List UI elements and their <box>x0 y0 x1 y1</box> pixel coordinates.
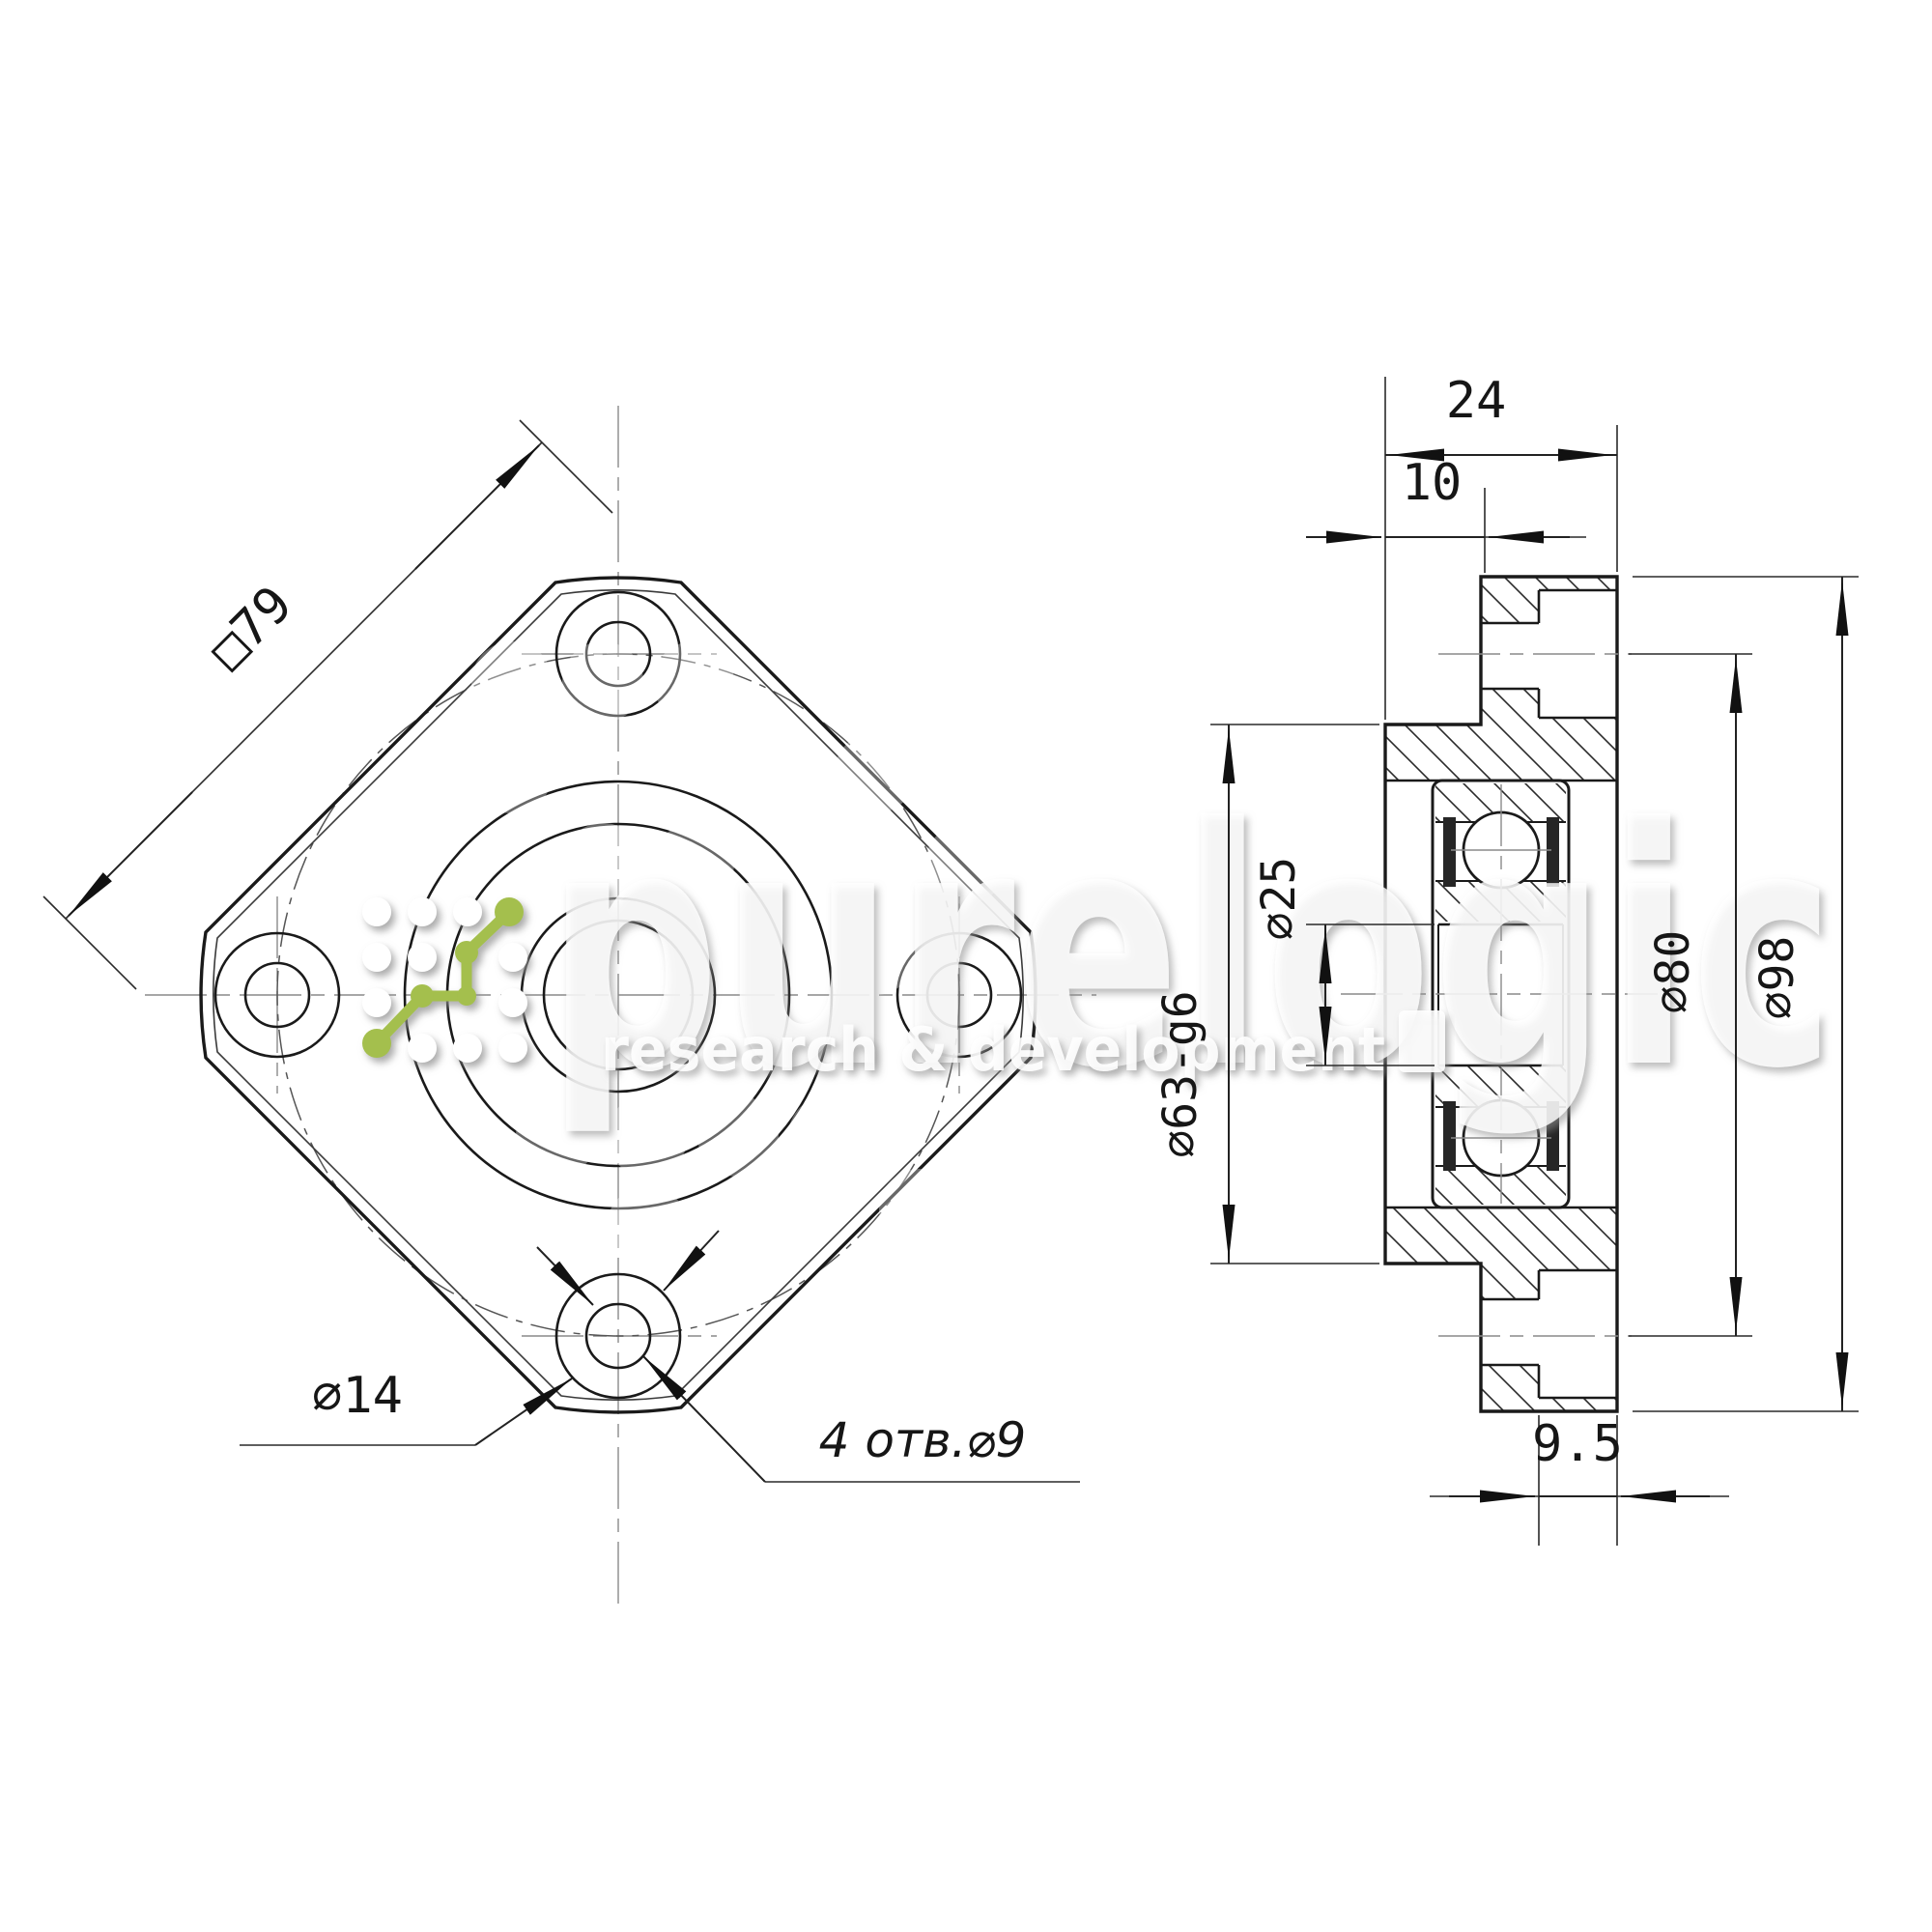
watermark-tagline-bar <box>1399 1010 1445 1072</box>
dim-depth-9-5: 9.5 <box>1430 1415 1729 1546</box>
dim-depth-9-5-label: 9.5 <box>1532 1415 1623 1473</box>
dim-flange-98-label: ⌀98 <box>1750 936 1804 1020</box>
dim-holes-count-label: 4 отв.⌀9 <box>819 1412 1027 1468</box>
drawing-canvas: purelogic research & development <box>0 0 1932 1932</box>
hatch-bottom-column <box>1481 1365 1617 1411</box>
dim-counterbore-label: ⌀14 <box>312 1367 403 1425</box>
dim-width-24: 24 <box>1385 372 1617 720</box>
hatch-bottom-band <box>1385 1207 1617 1299</box>
dim-pilot-63-label: ⌀63-g6 <box>1153 990 1207 1157</box>
hatch-top-column <box>1481 577 1617 623</box>
dim-pilot-10-label: 10 <box>1402 454 1463 512</box>
dim-square-side-label: □79 <box>199 576 304 681</box>
dim-pilot-10: 10 <box>1306 454 1586 573</box>
dim-width-24-label: 24 <box>1446 372 1507 430</box>
dim-bolt-circle-80-label: ⌀80 <box>1646 930 1700 1014</box>
watermark-tagline: research & development <box>601 1014 1385 1085</box>
dim-bore-25-label: ⌀25 <box>1252 857 1306 941</box>
